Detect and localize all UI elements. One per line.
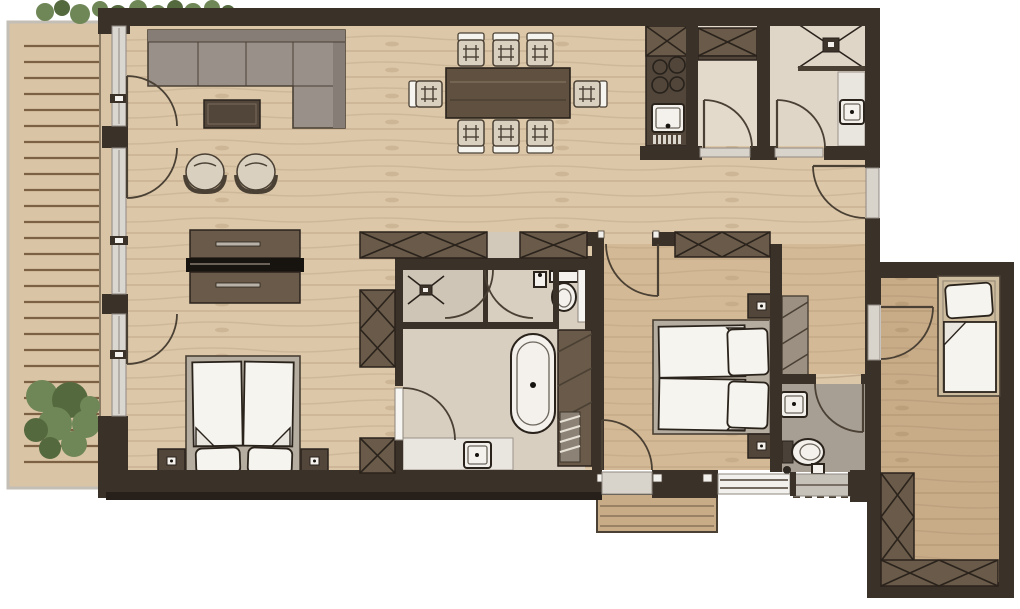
- dining-chair-2: [493, 33, 519, 66]
- closet-row-niche: [487, 232, 520, 258]
- wc-washbasin: [781, 392, 807, 417]
- annex-door-threshold: [868, 305, 880, 360]
- closet-row-hall-right: [520, 232, 587, 258]
- annex-pillow: [945, 282, 993, 318]
- wall-wc-north: [780, 374, 816, 384]
- bathtub-drain: [530, 382, 536, 388]
- dining-table: [446, 68, 570, 118]
- dining-chair-5: [493, 120, 519, 153]
- annex-wall-east: [999, 262, 1014, 598]
- utility-door-threshold: [775, 148, 823, 157]
- nightstand-1b: [301, 449, 328, 473]
- armchair-1: [185, 154, 225, 192]
- dining-chair-1: [458, 33, 484, 66]
- floor-plan-drawing: [0, 0, 1020, 609]
- wall-toilet-partition: [553, 268, 559, 329]
- bedroom2-open-shelf: [782, 296, 808, 378]
- wc-toilet: [782, 439, 824, 465]
- wall-post-left-2: [102, 294, 128, 314]
- wall-storage-utility: [757, 22, 770, 160]
- bed-2: [653, 320, 775, 434]
- kitchen-upper-cabinet: [646, 26, 688, 56]
- closet-row-hall-left: [360, 232, 487, 258]
- wall-bedroom2-east: [770, 244, 782, 472]
- utility-shelf: [798, 66, 866, 71]
- shower-floor: [403, 270, 483, 322]
- outdoor-step: [597, 492, 858, 532]
- wall-rooms-south-3: [824, 146, 865, 160]
- sleeping1-wardrobe-lower: [360, 438, 395, 473]
- storage-wardrobe: [698, 28, 757, 60]
- nightstand-1a: [158, 449, 185, 473]
- single-bed: [938, 276, 1000, 396]
- bed2-pillow-bottom: [727, 381, 769, 428]
- bathroom-shelf-unit: [558, 330, 592, 466]
- wall-bathroom-west-lower: [395, 440, 403, 470]
- entrance-threshold: [866, 168, 879, 218]
- wc-floor-drain: [783, 466, 791, 474]
- window-frame-mark-2: [653, 474, 662, 482]
- wall-right-upper: [865, 8, 880, 168]
- freestanding-bathtub: [511, 334, 555, 433]
- wall-post-left-1: [102, 126, 128, 148]
- floor-plan-page: [0, 0, 1020, 609]
- wall-kitchen-storage: [686, 22, 698, 160]
- wall-rooms-south-2: [750, 146, 777, 160]
- tv-sideboard: [186, 230, 304, 303]
- utility-washbasin: [840, 100, 864, 124]
- hinge-mark-1: [598, 231, 604, 238]
- wall-bathroom-partition: [403, 322, 555, 329]
- annex-wall-west-lower: [867, 360, 881, 582]
- storage-door-threshold: [700, 148, 750, 157]
- bathroom-vanity: [403, 438, 513, 470]
- bottom-window-white[interactable]: [718, 474, 790, 494]
- wc-accessory: [812, 464, 824, 474]
- vanity-washbasin: [464, 442, 491, 468]
- dining-chair-3: [527, 33, 553, 66]
- wall-rooms-south-1: [640, 146, 702, 160]
- bottom-window-gray[interactable]: [790, 472, 854, 496]
- annex-wall-west-upper: [867, 278, 881, 305]
- bed2-pillow-top: [727, 328, 769, 375]
- armchair-2: [236, 154, 276, 192]
- towel-ladder: [560, 412, 580, 462]
- bedroom2-terrace-threshold: [602, 472, 652, 494]
- annex-room: [881, 276, 1000, 586]
- sleeping1-wardrobe-upper: [360, 290, 395, 367]
- kitchen: [646, 26, 688, 146]
- hinge-mark-2: [653, 231, 659, 238]
- dining-chair-7: [409, 81, 442, 107]
- wall-bathroom-west-upper: [395, 258, 403, 386]
- bathroom-pocket-door: [578, 266, 586, 322]
- dining-chair-6: [527, 120, 553, 153]
- window-frame-mark-3: [703, 474, 712, 482]
- dining-chair-4: [458, 120, 484, 153]
- storage-room: [698, 28, 757, 60]
- bedroom2-wardrobe: [675, 232, 770, 257]
- dining-chair-8: [574, 81, 607, 107]
- bed-1: [186, 356, 300, 476]
